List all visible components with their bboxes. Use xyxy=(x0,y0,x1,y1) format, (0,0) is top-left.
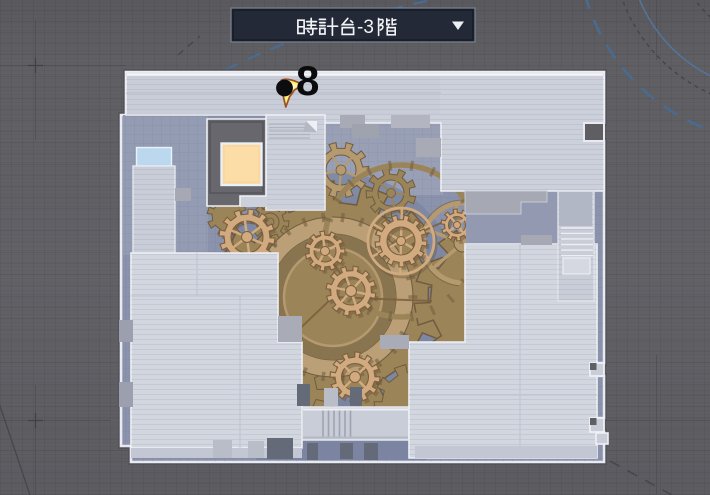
svg-text:8: 8 xyxy=(296,57,319,104)
svg-text:-3: -3 xyxy=(357,17,374,38)
